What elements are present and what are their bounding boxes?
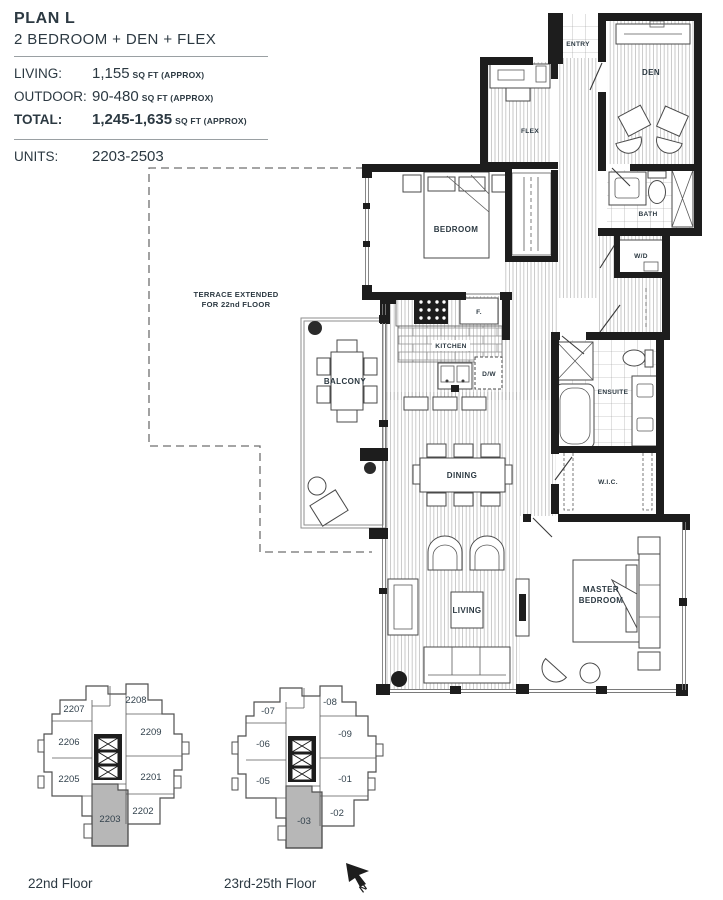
chair-icon (536, 659, 566, 688)
room-label-living: LIVING (452, 606, 481, 615)
unit-label: -09 (338, 729, 352, 740)
north-arrow: N (346, 863, 371, 895)
unit-label: 2207 (63, 704, 84, 715)
stool-icon (404, 397, 428, 410)
sofa-icon (424, 647, 510, 683)
chair-icon (454, 493, 473, 506)
unit-label: -01 (338, 774, 352, 785)
fridge-label: F. (476, 309, 482, 316)
plant-icon (308, 321, 322, 335)
shower-icon (672, 170, 693, 227)
chair-icon (481, 493, 500, 506)
room-label-balcony: BALCONY (324, 377, 367, 386)
keyplan-23rd-25th-floor: -07 -08 -06 -09 -05 -01 -03 -02 (232, 686, 383, 848)
toilet-icon (623, 350, 653, 367)
hall-floor (558, 58, 598, 298)
room-label-bedroom: BEDROOM (434, 225, 479, 234)
room-label-flex: FLEX (521, 128, 539, 135)
floorplan-drawing: TERRACE EXTENDED FOR 22nd FLOOR BALCONY (0, 0, 723, 900)
room-label-master-line2: BEDROOM (579, 596, 624, 605)
keyplan-22nd-floor: 2207 2208 2206 2209 2205 2201 2203 2202 (38, 684, 189, 846)
plant-icon (364, 462, 376, 474)
stool-icon (462, 397, 486, 410)
unit-label: -08 (323, 697, 337, 708)
master-bedroom-furniture: MASTER BEDROOM (536, 537, 660, 688)
unit-label: 2209 (140, 727, 161, 738)
shower-icon (557, 342, 593, 380)
chair-icon (427, 493, 446, 506)
balcony-room: BALCONY (301, 318, 386, 528)
terrace-note-line2: FOR 22nd FLOOR (202, 300, 271, 309)
entry-floor (558, 14, 598, 58)
room-label-master-line1: MASTER (583, 585, 619, 594)
closet-rod (643, 452, 652, 510)
sink-icon (438, 363, 472, 392)
dining-furniture: DINING (413, 444, 512, 506)
room-label-entry: ENTRY (566, 41, 590, 48)
nightstand-icon (403, 175, 421, 192)
chair-icon (454, 444, 473, 457)
unit-label: -07 (261, 706, 275, 717)
loveseat-icon (388, 579, 418, 635)
keyplan-caption-22nd: 22nd Floor (28, 876, 93, 891)
inner-hall-floor (520, 340, 556, 516)
elevator-core (94, 734, 122, 780)
unit-label: 2202 (132, 806, 153, 817)
dishwasher-label: D/W (482, 371, 496, 378)
toilet-icon (648, 171, 666, 204)
room-label-wic: W.I.C. (598, 479, 618, 486)
keyplan-caption-23rd-25th: 23rd-25th Floor (224, 876, 317, 891)
chair-icon (481, 444, 500, 457)
room-label-dining: DINING (447, 471, 477, 480)
north-arrow-icon (346, 863, 369, 887)
stove-icon (414, 296, 448, 324)
side-table-icon (308, 477, 326, 495)
vanity-sink-icon (609, 172, 646, 205)
ottoman-icon (580, 663, 600, 683)
pillow-icon (459, 177, 485, 191)
chair-icon (506, 88, 530, 101)
unit-label-highlighted: -03 (297, 816, 311, 827)
wd-label: W/D (634, 253, 648, 260)
room-label-bath: BATH (638, 211, 657, 218)
sliding-door-panel (369, 528, 388, 539)
unit-label: 2205 (58, 774, 79, 785)
room-label-den: DEN (642, 68, 660, 77)
sliding-door-panel (360, 448, 388, 461)
nightstand-icon (638, 537, 660, 554)
wic-room: W.I.C. (564, 452, 652, 510)
terrace-note-line1: TERRACE EXTENDED (194, 290, 279, 299)
closet-rod (564, 452, 573, 510)
unit-label: -06 (256, 739, 270, 750)
chair-icon (427, 444, 446, 457)
desk-icon (490, 64, 550, 88)
elevator-core (288, 736, 316, 782)
unit-label-highlighted: 2203 (99, 814, 120, 825)
bedroom-furniture (403, 172, 551, 258)
nightstand-icon (638, 652, 660, 670)
vanity-double-sink-icon (632, 376, 658, 446)
room-label-kitchen: KITCHEN (435, 343, 466, 350)
unit-label: 2206 (58, 737, 79, 748)
unit-label: 2208 (125, 695, 146, 706)
stool-icon (433, 397, 457, 410)
room-label-ensuite: ENSUITE (598, 389, 629, 396)
unit-label: -02 (330, 808, 344, 819)
tv-console-icon (516, 579, 529, 636)
plant-icon (391, 671, 407, 687)
unit-label: -05 (256, 776, 270, 787)
bathtub-icon (556, 384, 594, 448)
unit-label: 2201 (140, 772, 161, 783)
headboard-icon (639, 554, 660, 648)
